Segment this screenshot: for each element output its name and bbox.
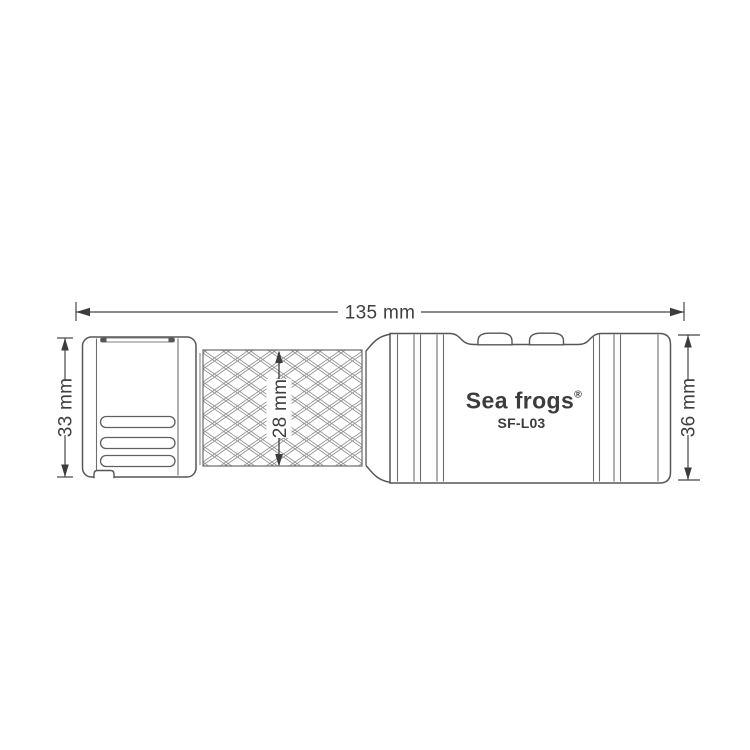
head-top-groove — [101, 338, 175, 342]
flashlight-dimension-diagram: 135 mm 28 mm — [0, 0, 750, 750]
dimension-head-label: 33 mm — [56, 378, 77, 438]
model-number-text: SF-L03 — [498, 415, 546, 431]
head-bottom-notch-fill — [94, 471, 114, 479]
head-grip-slot — [101, 456, 176, 467]
flashlight-button — [530, 333, 564, 345]
body-taper — [366, 334, 392, 483]
arrow-up-icon — [684, 335, 692, 348]
arrow-left-icon — [76, 308, 90, 317]
arrow-down-icon — [61, 465, 69, 478]
head-grip-slot — [101, 438, 176, 449]
registered-trademark: ® — [574, 389, 582, 401]
dimension-body-label: 36 mm — [679, 378, 700, 438]
flashlight-button — [478, 333, 512, 345]
brand-logo-text: Sea frogs — [466, 388, 574, 414]
head-top-groove-endcap — [169, 338, 175, 342]
dimension-grip-label: 28 mm — [270, 379, 291, 439]
arrow-right-icon — [670, 308, 684, 317]
dimension-length-label: 135 mm — [345, 303, 415, 324]
arrow-up-icon — [61, 338, 69, 351]
head-grip-slot — [101, 417, 176, 428]
canvas: 135 mm 28 mm — [0, 0, 750, 750]
flashlight-head — [83, 337, 197, 479]
arrow-down-icon — [684, 468, 692, 481]
head-top-groove-endcap — [101, 338, 107, 342]
taper-fill — [366, 334, 392, 483]
